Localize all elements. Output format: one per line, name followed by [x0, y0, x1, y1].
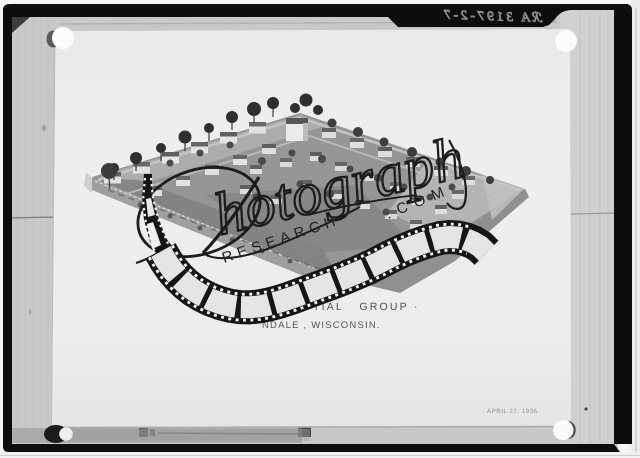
svg-text:APRIL 27, 1936.: APRIL 27, 1936.	[487, 408, 540, 415]
svg-text:NDALE , WISCONSIN.: NDALE , WISCONSIN.	[262, 320, 381, 331]
svg-text:TIAL GROUP ·: TIAL GROUP ·	[313, 301, 420, 313]
